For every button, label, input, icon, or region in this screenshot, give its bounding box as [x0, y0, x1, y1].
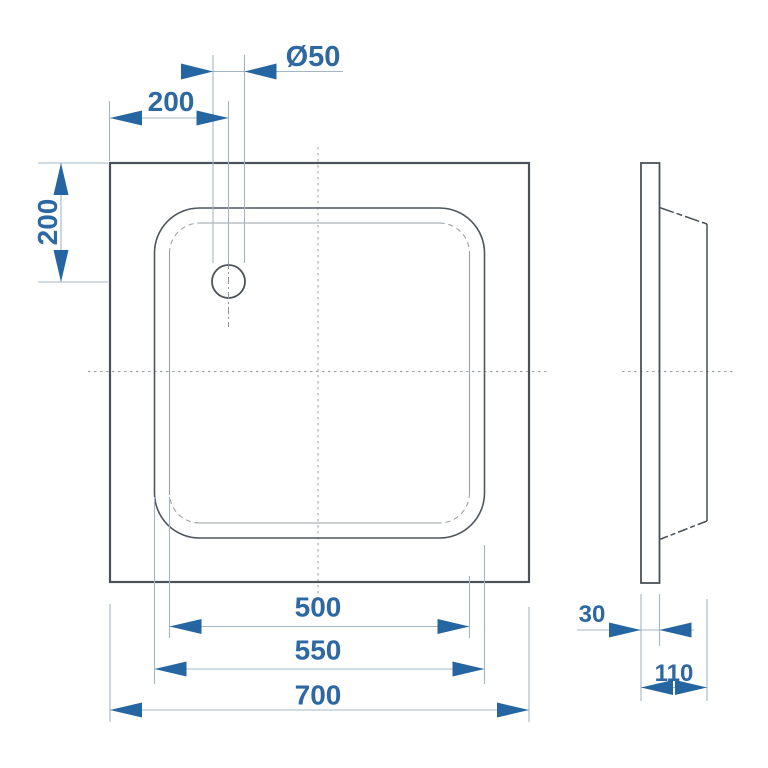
- arrowhead-right: [438, 619, 470, 634]
- arrowhead-left: [170, 619, 202, 634]
- arrowhead-left: [110, 111, 142, 126]
- dim-label-floor-width: 500: [295, 592, 342, 623]
- dim-label-drain-offset-x: 200: [148, 86, 195, 117]
- arrowhead-top: [54, 163, 69, 195]
- extension-lines: [110, 101, 229, 263]
- dim-floor-width: 500: [170, 497, 470, 638]
- arrowhead-right: [497, 703, 529, 718]
- dim-overall-depth: 110: [641, 599, 707, 701]
- side-view: 30 110: [577, 163, 733, 701]
- arrowhead-left: [110, 703, 142, 718]
- floor-corner-arcs: [170, 223, 470, 523]
- dim-label-overall-depth: 110: [655, 660, 694, 687]
- arrowhead-bottom: [54, 250, 69, 282]
- arrowhead-left: [155, 662, 187, 677]
- floor-edge-lines: [170, 223, 470, 523]
- dim-label-drain-offset-y: 200: [32, 199, 63, 246]
- dim-rim-width: 550: [155, 497, 485, 684]
- dim-drain-offset-y: 200: [32, 163, 108, 282]
- arrowhead-left: [609, 623, 641, 638]
- basin-top-slope: [660, 208, 708, 225]
- outer-square-outline: [110, 163, 529, 582]
- technical-drawing: Ø50 200 200 500: [0, 0, 768, 768]
- arrowhead-left: [181, 64, 213, 80]
- dim-label-drain-diameter: Ø50: [286, 41, 341, 73]
- dim-drain-diameter: Ø50: [181, 41, 343, 263]
- arrowhead-right: [453, 662, 485, 677]
- rim-rounded-square: [155, 208, 485, 538]
- dim-label-flange-thickness: 30: [579, 601, 606, 628]
- arrowhead-right: [245, 64, 277, 80]
- dim-label-overall-width: 700: [295, 680, 342, 711]
- arrowhead-right: [660, 623, 692, 638]
- flange-profile: [641, 163, 660, 583]
- dim-label-rim-width: 550: [295, 635, 342, 666]
- dim-drain-offset-x: 200: [110, 86, 229, 263]
- drawing-canvas: Ø50 200 200 500: [0, 0, 768, 768]
- basin-bottom-slope: [660, 521, 708, 540]
- plan-view: Ø50 200 200 500: [32, 41, 547, 722]
